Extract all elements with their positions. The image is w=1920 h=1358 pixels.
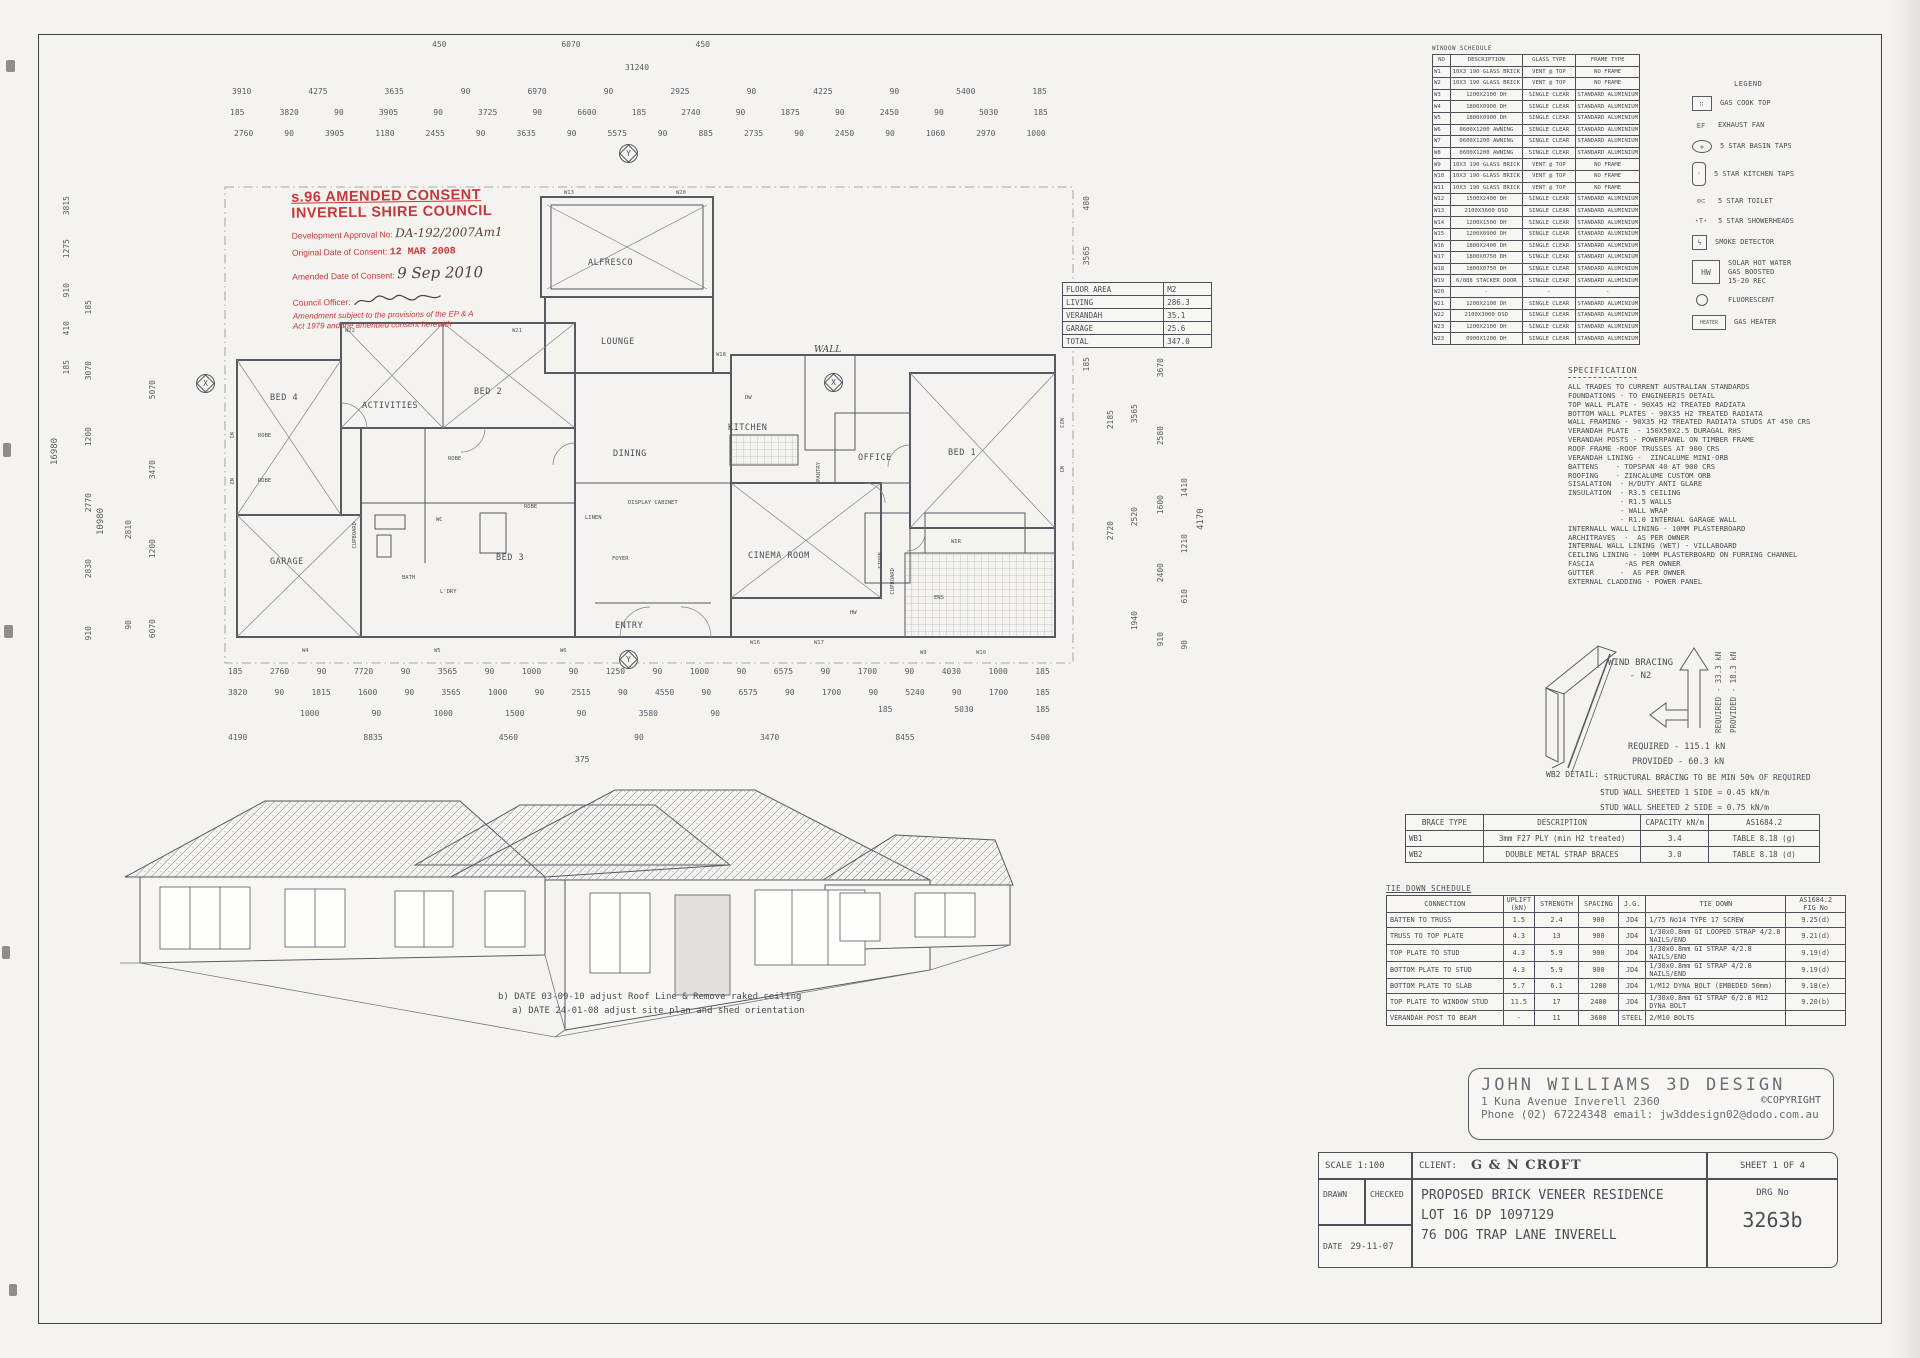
table-cell: W12 <box>1433 194 1451 206</box>
column-header: TIE DOWN <box>1646 896 1786 913</box>
dimension-value: 4225 <box>813 87 832 96</box>
table-cell: STANDARD ALUMINIUM <box>1576 89 1640 101</box>
legend-item: ∷ GAS COOK TOP <box>1692 96 1857 111</box>
dimension-value: 3565 <box>1082 246 1091 265</box>
table-row: W230900X1200 DHSINGLE CLEARSTANDARD ALUM… <box>1433 333 1640 345</box>
table-cell: 1200X0900 DH <box>1450 228 1522 240</box>
dimension-value: 90 <box>476 129 486 138</box>
room-label-dining: DINING <box>613 449 647 459</box>
table-row: W31200X2100 DHSINGLE CLEARSTANDARD ALUMI… <box>1433 89 1640 101</box>
hot-water-icon: HW <box>1692 260 1720 284</box>
client-name: G & N CROFT <box>1471 1158 1582 1173</box>
table-cell: - <box>1522 286 1576 298</box>
axis-marker-x-left: X <box>196 374 215 393</box>
window-tag: W18 <box>716 352 726 358</box>
dimension-value: 90 <box>577 709 587 718</box>
table-cell: 1800X0750 DH <box>1450 252 1522 264</box>
table-cell: JD4 <box>1618 945 1645 962</box>
table-cell: 3600 <box>1579 1011 1619 1026</box>
dimension-value: 90 <box>567 129 577 138</box>
dimension-value: 5030 <box>954 705 973 714</box>
dimension-total-10980: 10980 <box>96 465 106 535</box>
project-lot: LOT 16 DP 1097129 <box>1421 1206 1706 1226</box>
fixture-label-robe: ROBE <box>258 478 271 484</box>
legend-item: ◦ 5 STAR KITCHEN TAPS <box>1692 162 1857 186</box>
fluorescent-icon <box>1696 294 1708 306</box>
table-cell: W8 <box>1433 147 1451 159</box>
dimension-row-top-1: 4506070450 <box>432 40 710 49</box>
table-cell: 1/30x0.8mm GI LOOPED STRAP 4/2.8 NAILS/E… <box>1646 928 1786 945</box>
room-label-store: STORE <box>878 552 884 569</box>
table-cell: 1200X2100 DH <box>1450 89 1522 101</box>
dimension-value: 610 <box>1180 589 1189 603</box>
wind-bracing-note1: STRUCTURAL BRACING TO BE MIN 50% OF REQU… <box>1604 773 1811 782</box>
dimension-value: 185 <box>62 360 71 374</box>
project-title: PROPOSED BRICK VENEER RESIDENCE <box>1421 1186 1706 1206</box>
dimension-value: 6575 <box>774 667 793 676</box>
scanned-drawing-sheet: { "sheet": {"accent_red": "#c4373b", "in… <box>0 0 1920 1358</box>
table-cell: 1/30x0.8mm GI STRAP 4/2.8 NAILS/END <box>1646 962 1786 979</box>
checked-cell: CHECKED <box>1365 1179 1412 1225</box>
table-cell: 0900X1200 DH <box>1450 333 1522 345</box>
table-cell: W23 <box>1433 321 1451 333</box>
table-cell: STANDARD ALUMINIUM <box>1576 298 1640 310</box>
table-cell: 3mm F27 PLY (min H2 treated) <box>1483 831 1641 847</box>
table-row: BATTEN TO TRUSS1.52.4900JD41/75 No14 TYP… <box>1387 913 1846 928</box>
table-cell: NO FRAME <box>1576 159 1640 171</box>
dimension-value: 2760 <box>234 129 253 138</box>
dimension-value: 90 <box>535 688 545 697</box>
table-row: GARAGE25.6 <box>1063 322 1212 335</box>
table-cell: W5 <box>1433 112 1451 124</box>
table-cell: W4 <box>1433 101 1451 113</box>
wind-bracing-note3: STUD WALL SHEETED 2 SIDE = 0.75 kN/m <box>1600 803 1769 812</box>
legend-title: LEGEND <box>1734 80 1857 88</box>
dimension-value: 6575 <box>738 688 757 697</box>
table-cell: JD4 <box>1618 962 1645 979</box>
designer-box: JOHN WILLIAMS 3D DESIGN 1 Kuna Avenue In… <box>1468 1068 1834 1140</box>
axis-letter: Y <box>626 149 631 158</box>
dimension-value: 185 <box>1032 87 1046 96</box>
dimension-value: 1210 <box>1180 534 1189 553</box>
dimension-row-bottom-4: 41908835456090347084555400 <box>228 733 1050 742</box>
table-cell: 9.21(d) <box>1786 928 1846 945</box>
table-cell: NO FRAME <box>1576 182 1640 194</box>
table-cell: 11 <box>1535 1011 1579 1026</box>
table-cell: 900 <box>1579 913 1619 928</box>
stamp-approval-value: DA-192/2007Am1 <box>395 225 503 240</box>
dimension-value: 6070 <box>561 40 580 49</box>
table-cell: W6 <box>1433 124 1451 136</box>
table-cell: 10X3 190 GLASS BRICK <box>1450 78 1522 90</box>
table-cell: NO FRAME <box>1576 78 1640 90</box>
scale-cell: SCALE 1:100 <box>1318 1152 1412 1179</box>
axis-letter: X <box>203 379 208 388</box>
dimension-value: 1060 <box>926 129 945 138</box>
dimension-value: 185 <box>1082 357 1091 371</box>
dimension-value: 1000 <box>522 667 541 676</box>
table-cell: STANDARD ALUMINIUM <box>1576 240 1640 252</box>
stamp-approval-label: Development Approval No: <box>292 229 393 240</box>
table-row: VERANDAH35.1 <box>1063 309 1212 322</box>
room-label-kitchen: KITCHEN <box>728 423 767 433</box>
table-cell <box>1786 1011 1846 1026</box>
window-tag: W16 <box>750 640 760 646</box>
dimension-value: 90 <box>702 688 712 697</box>
room-label-ens: ENS <box>934 595 944 601</box>
dimension-value: 5400 <box>1031 733 1050 742</box>
legend-label: 5 STAR BASIN TAPS <box>1720 142 1792 151</box>
dimension-value: 185 <box>1033 108 1047 117</box>
table-cell: 1800X0750 DH <box>1450 263 1522 275</box>
table-row: BOTTOM PLATE TO STUD4.35.9900JD41/30x0.8… <box>1387 962 1846 979</box>
table-cell: SINGLE CLEAR <box>1522 147 1576 159</box>
dimension-value: 910 <box>62 283 71 297</box>
table-cell: JD4 <box>1618 913 1645 928</box>
room-label-lounge: LOUNGE <box>601 337 635 347</box>
table-cell: 6/888 STACKER DOOR <box>1450 275 1522 287</box>
specification-title: SPECIFICATION <box>1568 366 1637 378</box>
table-cell: SINGLE CLEAR <box>1522 194 1576 206</box>
legend-item: ϟ SMOKE DETECTOR <box>1692 235 1857 250</box>
table-row: TRUSS TO TOP PLATE4.313900JD41/30x0.8mm … <box>1387 928 1846 945</box>
table-cell: NO FRAME <box>1576 170 1640 182</box>
sheet-cell: SHEET 1 OF 4 <box>1707 1152 1838 1179</box>
table-row: W211200X2100 DHSINGLE CLEARSTANDARD ALUM… <box>1433 298 1640 310</box>
dimension-value: 8455 <box>895 733 914 742</box>
dimension-value: 90 <box>736 108 746 117</box>
column-header: GLASS TYPE <box>1522 55 1576 67</box>
client-label: CLIENT: <box>1419 1161 1457 1171</box>
binder-hole <box>3 443 11 457</box>
table-cell: SINGLE CLEAR <box>1522 217 1576 229</box>
table-row: LIVING286.3 <box>1063 296 1212 309</box>
dimension-value: 2515 <box>572 688 591 697</box>
table-cell: GARAGE <box>1063 322 1164 335</box>
table-cell: 9.25(d) <box>1786 913 1846 928</box>
dimension-value: 1700 <box>989 688 1008 697</box>
project-cell: PROPOSED BRICK VENEER RESIDENCE LOT 16 D… <box>1412 1179 1707 1268</box>
dimension-value: 6970 <box>527 87 546 96</box>
table-cell: 1200X2100 DH <box>1450 321 1522 333</box>
room-label-cinema: CINEMA ROOM <box>748 551 810 561</box>
stamp-original-label: Original Date of Consent: <box>292 246 388 257</box>
dimension-value: 3565 <box>1130 404 1139 423</box>
dimension-value: 185 <box>1036 705 1050 714</box>
dimension-value: 90 <box>284 129 294 138</box>
fixture-label-robe: ROBE <box>258 433 271 439</box>
dimension-value: 3670 <box>1156 358 1165 377</box>
dimension-col-left-5: 281090 <box>124 520 133 630</box>
stamp-council-name: INVERELL SHIRE COUNCIL <box>291 202 541 221</box>
dimension-value: 6070 <box>148 619 157 638</box>
dimension-value: 4030 <box>942 667 961 676</box>
stamp-note: Amendment subject to the provisions of t… <box>293 309 483 332</box>
legend-label: EXHAUST FAN <box>1718 121 1764 130</box>
legend-label: 5 STAR TOILET <box>1718 197 1773 206</box>
table-cell: VENT @ TOP <box>1522 170 1576 182</box>
table-cell: STANDARD ALUMINIUM <box>1576 310 1640 322</box>
table-cell: SINGLE CLEAR <box>1522 321 1576 333</box>
dimension-value: 1000 <box>989 667 1008 676</box>
table-cell: W17 <box>1433 252 1451 264</box>
dimension-row-bottom-2: 3820901815160090356510009025159045509065… <box>228 688 1050 697</box>
table-cell: 0600X1200 AWNING <box>1450 147 1522 159</box>
dimension-value: 1875 <box>781 108 800 117</box>
column-header: NO <box>1433 55 1451 67</box>
dimension-value: 1815 <box>311 688 330 697</box>
table-row: W222100X3000 DSDSINGLE CLEARSTANDARD ALU… <box>1433 310 1640 322</box>
dimension-col-right-4: 3670258016002400910 <box>1156 358 1165 646</box>
dimension-value: 7720 <box>354 667 373 676</box>
table-row: W51800X0900 DHSINGLE CLEARSTANDARD ALUMI… <box>1433 112 1640 124</box>
table-cell: SINGLE CLEAR <box>1522 228 1576 240</box>
table-cell: 5.7 <box>1503 979 1535 994</box>
dimension-value: 1410 <box>1180 478 1189 497</box>
table-cell: DOUBLE METAL STRAP BRACES <box>1483 847 1641 863</box>
legend-item: EF EXHAUST FAN <box>1692 120 1857 131</box>
table-cell: 13 <box>1535 928 1579 945</box>
legend-item: ⋆T⋆ 5 STAR SHOWERHEADS <box>1692 216 1857 226</box>
table-cell: JD4 <box>1618 928 1645 945</box>
dimension-value: 2925 <box>670 87 689 96</box>
column-header: STRENGTH <box>1535 896 1579 913</box>
dimension-value: 1180 <box>375 129 394 138</box>
table-cell: TABLE 8.18 (d) <box>1709 847 1820 863</box>
dimension-value: 3470 <box>148 460 157 479</box>
dimension-value: 2455 <box>426 129 445 138</box>
dimension-value: 90 <box>433 108 443 117</box>
scale-value: SCALE 1:100 <box>1325 1161 1385 1171</box>
dimension-value: 185 <box>1035 688 1049 697</box>
dimension-value: 90 <box>653 667 663 676</box>
dimension-value: 3820 <box>280 108 299 117</box>
wind-bracing-vertical-provided: PROVIDED - 18.3 kN <box>1729 628 1738 733</box>
window-tag: W23 <box>1058 418 1064 428</box>
dimension-value: 90 <box>275 688 285 697</box>
dimension-value: 185 <box>84 300 93 314</box>
table-cell: 10X3 190 GLASS BRICK <box>1450 182 1522 194</box>
dimension-value: 2400 <box>1156 563 1165 582</box>
column-header: DESCRIPTION <box>1483 815 1641 831</box>
column-header: FLOOR AREA <box>1063 283 1164 296</box>
table-cell: 6.1 <box>1535 979 1579 994</box>
table-cell: W10 <box>1433 170 1451 182</box>
binder-hole <box>4 625 13 638</box>
table-row: W210X3 190 GLASS BRICKVENT @ TOPNO FRAME <box>1433 78 1640 90</box>
table-cell: 1/75 No14 TYPE 17 SCREW <box>1646 913 1786 928</box>
table-cell: WB2 <box>1406 847 1484 863</box>
dimension-value: 90 <box>905 667 915 676</box>
dimension-value: 90 <box>952 688 962 697</box>
dimension-value: 90 <box>821 667 831 676</box>
drg-label: DRG No <box>1708 1188 1837 1198</box>
dimension-value: 3565 <box>438 667 457 676</box>
table-row: TOTAL347.0 <box>1063 335 1212 348</box>
dimension-value: 90 <box>401 667 411 676</box>
table-cell: TOTAL <box>1063 335 1164 348</box>
dimension-value: 5030 <box>979 108 998 117</box>
table-cell: W22 <box>1433 310 1451 322</box>
room-label-wir: WIR <box>951 539 961 545</box>
date-cell: DATE 29-11-07 <box>1318 1225 1412 1268</box>
room-label-display-cabinet: DISPLAY CABINET <box>628 500 678 506</box>
dimension-value: 90 <box>461 87 471 96</box>
table-cell: W19 <box>1433 275 1451 287</box>
table-cell: W13 <box>1433 205 1451 217</box>
window-tag: W3 <box>1058 466 1064 473</box>
table-cell: 5.9 <box>1535 962 1579 979</box>
table-cell: 0600X1200 AWNING <box>1450 136 1522 148</box>
dimension-value: 185 <box>230 108 244 117</box>
table-cell: 17 <box>1535 994 1579 1011</box>
room-label-garage: GARAGE <box>270 557 304 567</box>
table-row: W60600X1200 AWNINGSINGLE CLEARSTANDARD A… <box>1433 124 1640 136</box>
wind-bracing-vertical-required: REQUIRED - 33.3 kN <box>1714 628 1723 733</box>
window-schedule-title: WINDOW SCHEDULE <box>1432 46 1640 52</box>
table-cell: 1800X0900 DH <box>1450 112 1522 124</box>
council-stamp: s.96 AMENDED CONSENT INVERELL SHIRE COUN… <box>291 186 543 331</box>
table-cell: W3 <box>1433 89 1451 101</box>
table-cell: SINGLE CLEAR <box>1522 263 1576 275</box>
dimension-value: 450 <box>696 40 710 49</box>
table-cell: STANDARD ALUMINIUM <box>1576 112 1640 124</box>
floor-area-table: FLOOR AREAM2 LIVING286.3VERANDAH35.1GARA… <box>1062 282 1212 348</box>
table-cell: 900 <box>1579 962 1619 979</box>
fixture-label-linen: LINEN <box>585 515 602 521</box>
dimension-value: 2720 <box>1106 521 1115 540</box>
dimension-value: 4550 <box>655 688 674 697</box>
dimension-value: 3725 <box>478 108 497 117</box>
table-cell: 9.19(d) <box>1786 962 1846 979</box>
dimension-value: 3565 <box>441 688 460 697</box>
table-row: W151200X0900 DHSINGLE CLEARSTANDARD ALUM… <box>1433 228 1640 240</box>
legend-label: SOLAR HOT WATER GAS BOOSTED 15-20 REC <box>1728 259 1791 285</box>
dimension-value: 90 <box>334 108 344 117</box>
window-tag: W6 <box>560 648 567 654</box>
table-cell: 5.9 <box>1535 945 1579 962</box>
axis-marker-y-bottom: Y <box>619 650 638 669</box>
window-tag: W2 <box>228 478 234 485</box>
table-cell: W14 <box>1433 217 1451 229</box>
signature-scribble <box>353 292 443 309</box>
title-block: SCALE 1:100 CLIENT: G & N CROFT SHEET 1 … <box>1318 1152 1838 1268</box>
window-tag: W9 <box>920 650 927 656</box>
wind-bracing-provided: PROVIDED - 60.3 kN <box>1632 757 1724 767</box>
table-cell: 1/30x0.8mm GI STRAP 4/2.8 NAILS/END <box>1646 945 1786 962</box>
room-label-foyer: FOYER <box>612 556 629 562</box>
table-cell: 3.0 <box>1641 847 1709 863</box>
fixture-label-dw: DW <box>745 395 752 401</box>
stamp-amended-value: 9 Sep 2010 <box>397 263 483 282</box>
table-cell: STANDARD ALUMINIUM <box>1576 263 1640 275</box>
dimension-value: 3905 <box>325 129 344 138</box>
tie-down-title: TIE DOWN SCHEDULE <box>1386 884 1846 893</box>
smoke-detector-icon: ϟ <box>1692 235 1707 250</box>
table-cell: 3.4 <box>1641 831 1709 847</box>
dimension-value: 1700 <box>822 688 841 697</box>
designer-contact: Phone (02) 67224348 email: jw3ddesign02@… <box>1481 1108 1821 1121</box>
column-header: CONNECTION <box>1387 896 1504 913</box>
wind-bracing-note2: STUD WALL SHEETED 1 SIDE = 0.45 kN/m <box>1600 788 1769 797</box>
dimension-value: 90 <box>835 108 845 117</box>
table-row: W171800X0750 DHSINGLE CLEARSTANDARD ALUM… <box>1433 252 1640 264</box>
gas-cook-top-icon: ∷ <box>1692 96 1712 111</box>
dimension-value: 3910 <box>232 87 251 96</box>
tie-down-schedule: TIE DOWN SCHEDULE CONNECTIONUPLIFT (kN)S… <box>1386 884 1846 1026</box>
fixture-label-hw: HW <box>850 610 857 616</box>
table-cell: 1200X1500 DH <box>1450 217 1522 229</box>
copyright-mark: ©COPYRIGHT <box>1761 1095 1821 1108</box>
basin-taps-icon: ✛ <box>1692 140 1712 153</box>
table-cell: 1.5 <box>1503 913 1535 928</box>
dimension-value: 185 <box>1035 667 1049 676</box>
table-cell: SINGLE CLEAR <box>1522 298 1576 310</box>
dimension-value: 90 <box>737 667 747 676</box>
binder-hole <box>2 946 10 959</box>
handwritten-wall-annotation: WALL <box>814 345 841 355</box>
table-row: W910X3 190 GLASS BRICKVENT @ TOPNO FRAME <box>1433 159 1640 171</box>
table-cell: STANDARD ALUMINIUM <box>1576 124 1640 136</box>
dimension-value: 2760 <box>270 667 289 676</box>
table-cell: TRUSS TO TOP PLATE <box>1387 928 1504 945</box>
table-row: W110X3 190 GLASS BRICKVENT @ TOPNO FRAME <box>1433 66 1640 78</box>
dimension-value: 2810 <box>124 520 133 539</box>
dimension-value: 6600 <box>577 108 596 117</box>
room-label-bed2: BED 2 <box>474 387 502 397</box>
table-cell: SINGLE CLEAR <box>1522 275 1576 287</box>
dimension-value: 1500 <box>505 709 524 718</box>
table-cell: 2100X3000 DSD <box>1450 310 1522 322</box>
table-cell: 2.4 <box>1535 913 1579 928</box>
table-cell: VENT @ TOP <box>1522 159 1576 171</box>
stamp-original-field: Original Date of Consent: 12 MAR 2008 <box>292 244 542 259</box>
table-cell: SINGLE CLEAR <box>1522 124 1576 136</box>
column-header: SPACING <box>1579 896 1619 913</box>
dimension-value: 5575 <box>608 129 627 138</box>
showerheads-icon: ⋆T⋆ <box>1692 216 1710 226</box>
dimension-value: 1200 <box>148 539 157 558</box>
fixture-label-robe: ROBE <box>524 504 537 510</box>
table-cell: 900 <box>1579 928 1619 945</box>
dimension-value: 910 <box>84 626 93 640</box>
fixture-label-cupboard: CUPBOARD <box>352 522 358 549</box>
wb2-detail-label: WB2 DETAIL: <box>1546 770 1599 779</box>
fixture-label-robe: ROBE <box>448 456 461 462</box>
table-cell: 2/M10 BOLTS <box>1646 1011 1786 1026</box>
dimension-value: 90 <box>794 129 804 138</box>
window-tag: W10 <box>976 650 986 656</box>
room-label-pantry: PANTRY <box>816 462 822 482</box>
table-cell: SINGLE CLEAR <box>1522 333 1576 345</box>
table-cell: SINGLE CLEAR <box>1522 252 1576 264</box>
amendment-note-b: b) DATE 03-09-10 adjust Roof Line & Remo… <box>498 992 801 1002</box>
legend-item: HW SOLAR HOT WATER GAS BOOSTED 15-20 REC <box>1692 259 1857 285</box>
table-cell: JD4 <box>1618 994 1645 1011</box>
table-cell: STEEL <box>1618 1011 1645 1026</box>
room-label-activities: ACTIVITIES <box>362 401 418 411</box>
dimension-value: 90 <box>317 667 327 676</box>
toilet-icon: ⊙⊂ <box>1692 195 1710 207</box>
dimension-value: 2830 <box>84 559 93 578</box>
table-cell: STANDARD ALUMINIUM <box>1576 275 1640 287</box>
dimension-value: 1275 <box>62 239 71 258</box>
table-cell: STANDARD ALUMINIUM <box>1576 252 1640 264</box>
dimension-value: 90 <box>604 87 614 96</box>
table-cell: STANDARD ALUMINIUM <box>1576 205 1640 217</box>
table-cell: SINGLE CLEAR <box>1522 101 1576 113</box>
table-cell: 1800X0900 DH <box>1450 101 1522 113</box>
